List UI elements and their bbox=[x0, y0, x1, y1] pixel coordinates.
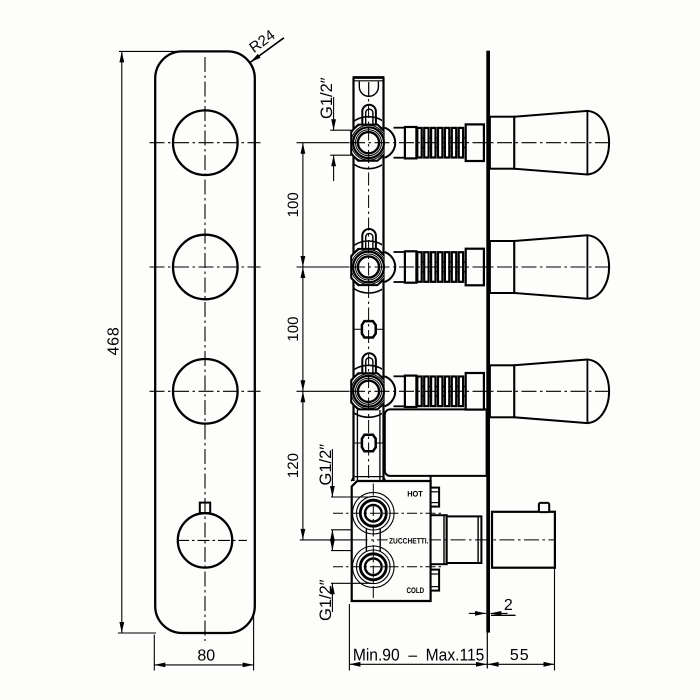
svg-text:100: 100 bbox=[285, 317, 302, 342]
svg-text:100: 100 bbox=[285, 192, 302, 217]
svg-text:HOT: HOT bbox=[407, 490, 423, 499]
svg-text:55: 55 bbox=[510, 647, 530, 664]
svg-text:Min.90 – Max.115: Min.90 – Max.115 bbox=[353, 645, 485, 664]
svg-text:80: 80 bbox=[197, 648, 215, 665]
svg-text:G1/2″: G1/2″ bbox=[318, 77, 336, 119]
svg-text:468: 468 bbox=[105, 326, 122, 355]
svg-text:120: 120 bbox=[285, 453, 302, 478]
svg-text:G1/2″: G1/2″ bbox=[317, 579, 335, 621]
svg-text:COLD: COLD bbox=[407, 586, 425, 595]
svg-text:ZUCCHETTI.: ZUCCHETTI. bbox=[389, 536, 429, 545]
svg-text:2: 2 bbox=[504, 597, 513, 614]
svg-text:G1/2″: G1/2″ bbox=[317, 444, 335, 486]
